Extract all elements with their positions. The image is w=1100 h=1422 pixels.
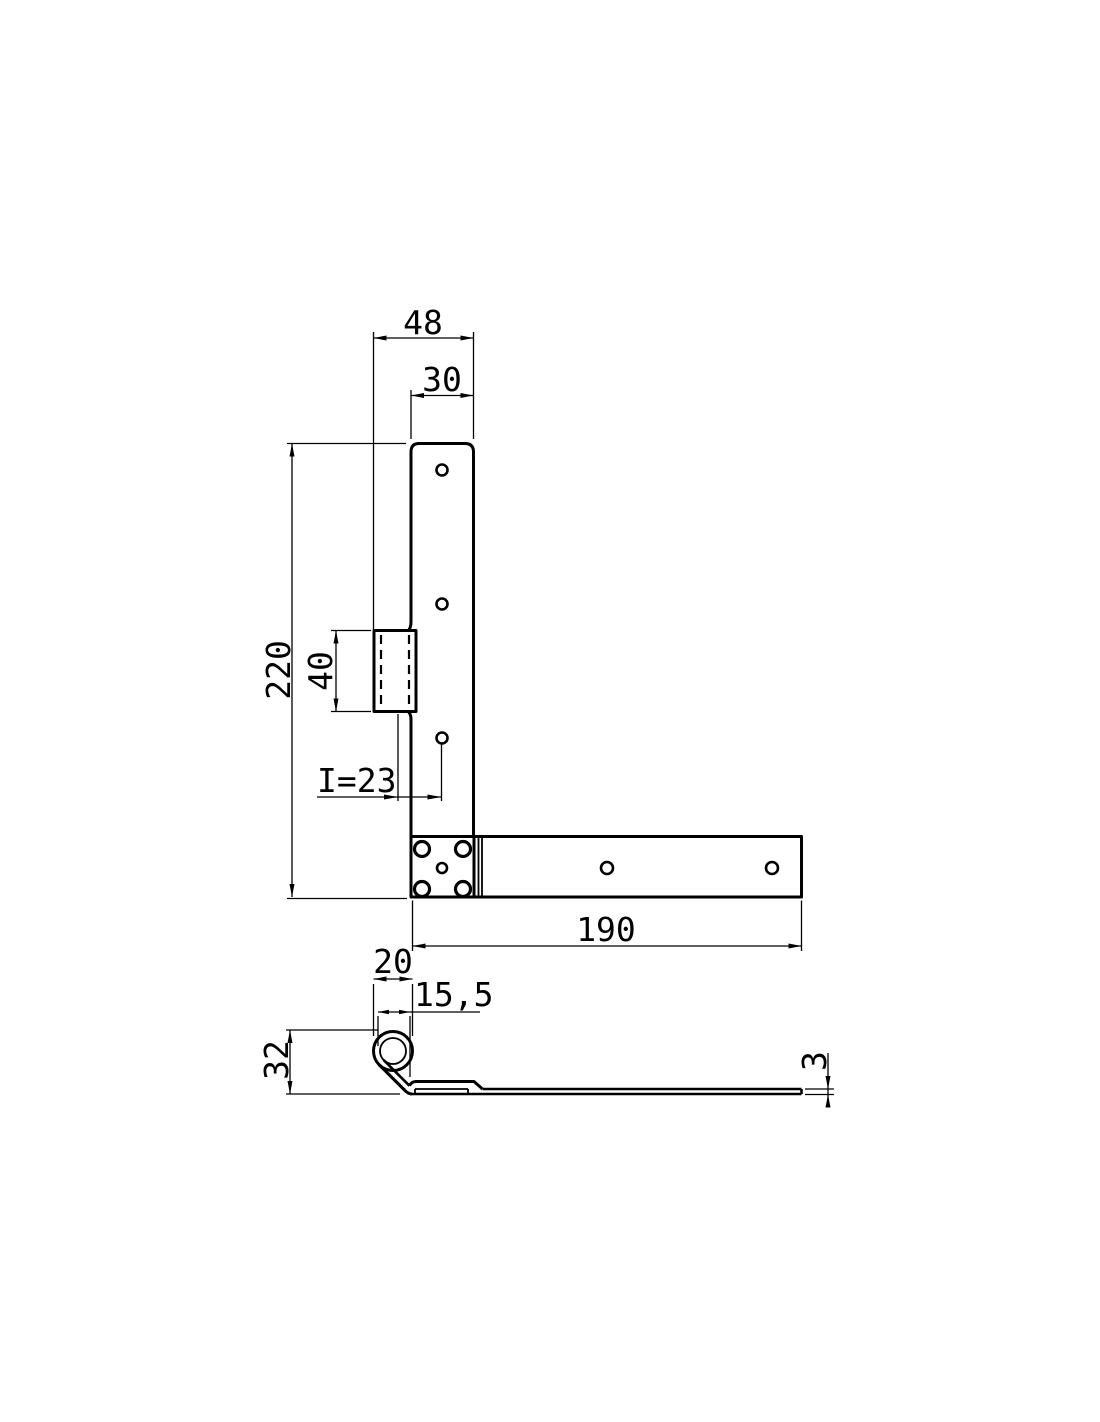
rivet-hole-bl	[415, 882, 430, 897]
arrowhead	[334, 631, 339, 644]
leaf-outline	[408, 444, 474, 837]
arrowhead	[826, 1076, 831, 1089]
strap-hole-1	[601, 862, 613, 874]
leaf-profile	[410, 1082, 483, 1090]
dimension-hole-offset: I=23	[317, 714, 442, 801]
dimension-label-20: 20	[373, 942, 413, 981]
arrowhead	[461, 336, 474, 341]
dimension-label-i23: I=23	[317, 761, 396, 800]
dimension-label-30: 30	[422, 360, 462, 399]
rivet-hole-tr	[456, 842, 471, 857]
extension-lines	[286, 1030, 400, 1094]
arrowhead	[290, 884, 295, 897]
side-view: 20 15,5 32 3	[257, 942, 834, 1108]
leaf-hole-middle	[437, 599, 448, 610]
arrowhead	[826, 1095, 831, 1108]
dimension-label-40: 40	[301, 651, 340, 691]
knuckle-pin-hidden-lines	[381, 635, 409, 707]
arrowhead	[428, 795, 442, 800]
arrowhead	[374, 336, 387, 341]
arrowhead	[399, 1010, 410, 1014]
dimension-label-32: 32	[257, 1040, 296, 1080]
dimension-label-3: 3	[795, 1051, 834, 1071]
arrowhead	[461, 393, 474, 398]
extension-lines	[805, 1089, 834, 1095]
rivet-hole-tl	[415, 842, 430, 857]
dimension-overall-width: 48	[374, 303, 474, 630]
arrowhead	[290, 444, 295, 457]
leaf-hole-bottom	[437, 733, 448, 744]
dimension-strap-length: 190	[413, 901, 802, 952]
dimension-knuckle-length: 40	[301, 631, 371, 712]
arrowhead	[789, 944, 802, 949]
extension-lines	[374, 984, 413, 1036]
dimension-label-220: 220	[259, 640, 298, 700]
arrowhead	[288, 1081, 293, 1094]
front-view: 48 30 220 40	[259, 303, 802, 951]
dimension-leaf-width: 30	[411, 360, 474, 439]
technical-drawing: 48 30 220 40	[0, 0, 1100, 1422]
rivet-hole-br	[456, 882, 471, 897]
dimension-barrel-offset: 15,5	[378, 975, 493, 1077]
arrowhead	[334, 699, 339, 712]
dimension-label-155: 15,5	[414, 975, 493, 1014]
leader-lines	[398, 714, 442, 801]
dimension-label-190: 190	[576, 910, 636, 949]
dimension-thickness: 3	[795, 1051, 834, 1107]
joint-lines	[479, 837, 483, 898]
arrowhead	[378, 1010, 389, 1014]
block-center-hole	[437, 863, 447, 873]
leaf-hole-top	[437, 465, 448, 476]
dimension-label-48: 48	[403, 303, 443, 342]
arrowhead	[413, 944, 426, 949]
dimension-barrel-width: 20	[373, 942, 413, 1036]
strap-hole-2	[766, 862, 778, 874]
